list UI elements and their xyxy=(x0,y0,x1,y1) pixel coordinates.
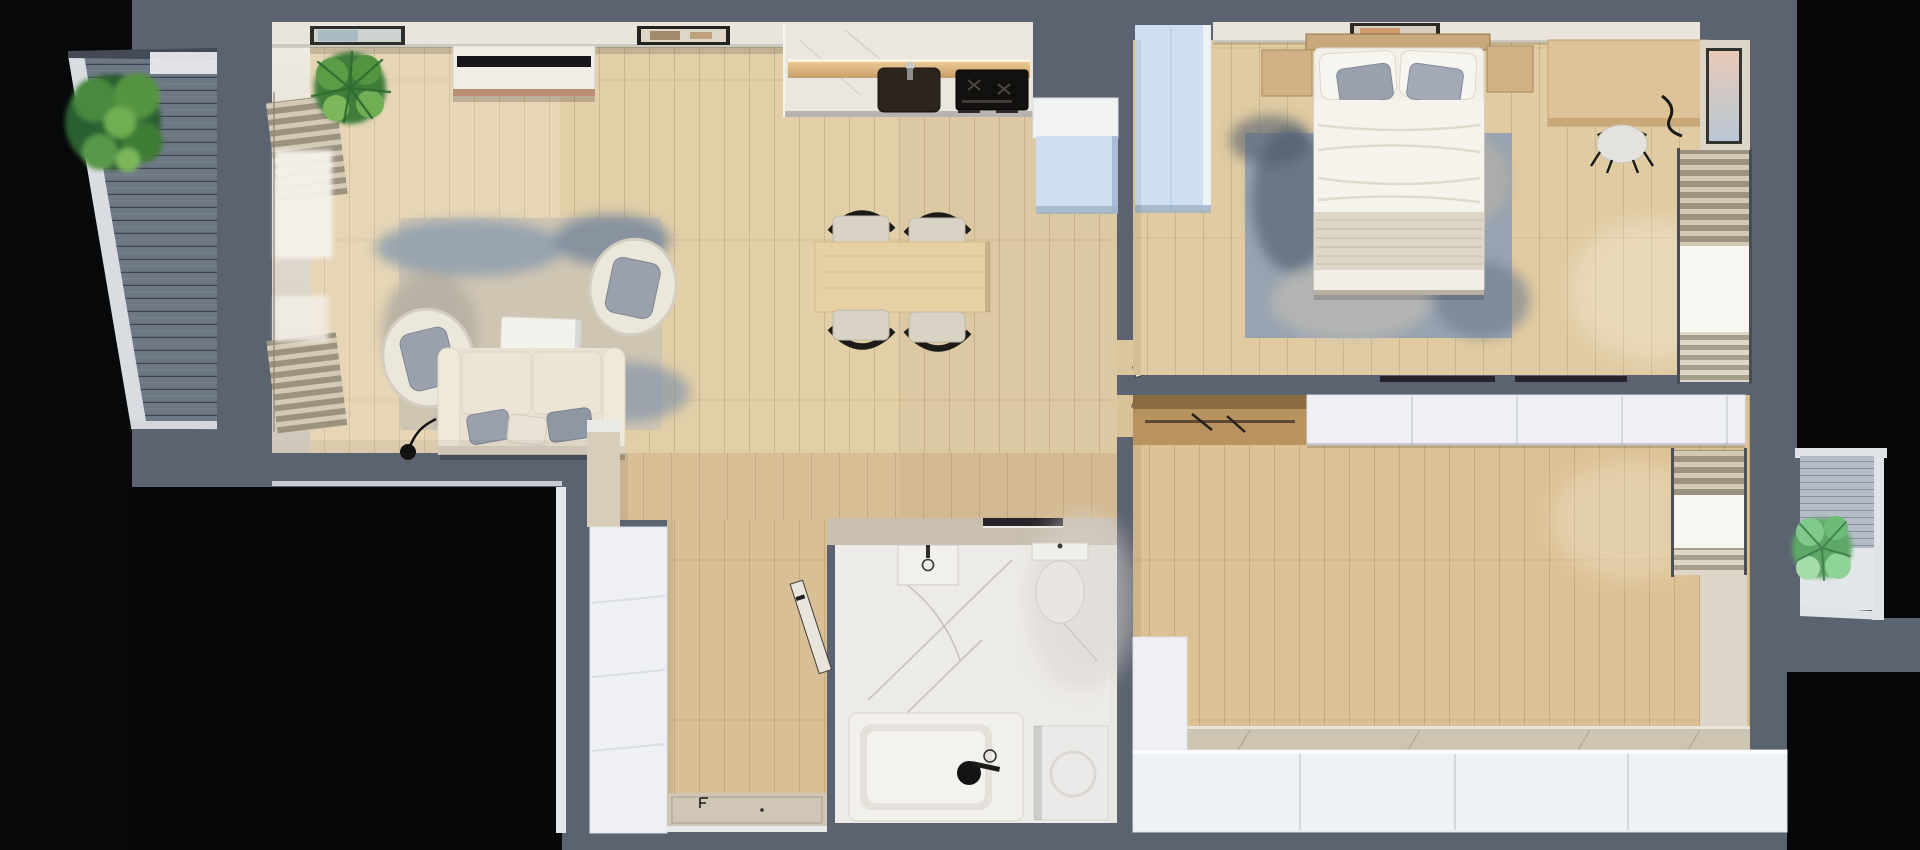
wall-art-kitchen xyxy=(637,26,730,45)
cooktop-controls xyxy=(962,100,1012,103)
nightstand-right xyxy=(1487,46,1533,92)
balcony-right xyxy=(1792,448,1887,620)
desk xyxy=(1548,40,1708,136)
entrance-threshold xyxy=(667,793,827,832)
room2-ledge xyxy=(1187,728,1750,752)
wall-art-living xyxy=(310,26,405,45)
washing-machine xyxy=(1034,726,1108,820)
window-glow xyxy=(1680,246,1752,332)
flush-button xyxy=(1058,544,1063,549)
baseboard-highlight xyxy=(272,481,562,486)
window-light-upper xyxy=(274,150,332,258)
bathroom-west-face xyxy=(835,545,842,823)
ledge-highlight xyxy=(1187,726,1750,729)
hall-floor-planks xyxy=(667,520,827,795)
desk-front-edge xyxy=(1548,118,1708,126)
fridge-side-shade xyxy=(1112,136,1118,212)
hanger-rail xyxy=(1145,420,1295,423)
room2-east-face xyxy=(1700,575,1747,730)
wall-art-east xyxy=(1706,48,1742,144)
window-frame xyxy=(1677,148,1680,384)
oven-handle xyxy=(958,110,980,113)
threshold-outer-edge xyxy=(667,826,827,832)
duvet xyxy=(1314,100,1484,230)
bed xyxy=(1306,34,1490,300)
balcony-right-plant xyxy=(1792,516,1852,580)
blinds-stack-top xyxy=(1680,150,1752,246)
room2-wardrobe-row xyxy=(1307,395,1745,448)
wall-stub-top xyxy=(587,420,620,432)
floor-plan-render xyxy=(0,0,1920,850)
bedroom-window xyxy=(1677,148,1752,384)
faucet-stem xyxy=(907,68,913,80)
cabinet-top-highlight xyxy=(1133,750,1787,754)
bed-frame-edge xyxy=(1314,290,1484,295)
oven-handle xyxy=(996,110,1018,113)
sofa-seat-cushion xyxy=(462,352,531,414)
blinds-stack-bottom xyxy=(1673,548,1747,575)
closet-track xyxy=(1380,376,1495,382)
room2-window xyxy=(1671,448,1747,577)
balcony-door-light xyxy=(150,52,217,74)
pillow-gray xyxy=(1406,62,1464,105)
window-frame xyxy=(1749,148,1752,384)
tv-cabinet xyxy=(453,46,595,96)
wardrobe-shelf-shade xyxy=(1133,395,1307,409)
threshold-dot xyxy=(760,808,764,812)
wall-stub-column xyxy=(587,420,620,527)
table-edge-shade xyxy=(985,242,990,312)
basin-drain xyxy=(923,560,934,571)
bedroom-blue-wardrobe xyxy=(1135,25,1211,213)
blinds-stack-top xyxy=(1673,450,1747,495)
outside-top-right xyxy=(1797,0,1920,455)
bedroom-doorway xyxy=(1117,340,1133,375)
bedroom xyxy=(1133,22,1752,384)
closet-track xyxy=(1515,376,1627,382)
cooktop xyxy=(956,70,1028,110)
basin-faucet xyxy=(926,545,930,558)
sliding-door-track xyxy=(983,518,1063,526)
hall-wardrobe xyxy=(590,527,667,833)
undercabinet-light xyxy=(788,59,1030,62)
wardrobe-shade xyxy=(1135,205,1211,213)
room2-open-wardrobe xyxy=(1133,395,1307,445)
room-2 xyxy=(1133,395,1787,832)
balcony-left-bottom-frame xyxy=(131,421,217,429)
fridge-bottom-shade xyxy=(1036,206,1118,214)
washbasin xyxy=(898,545,958,585)
bed-shadow xyxy=(1314,295,1484,300)
kitchen-sink xyxy=(878,62,940,113)
bathtub xyxy=(849,713,1023,821)
sofa-armrest-left xyxy=(438,348,460,454)
outside-bottom-right xyxy=(1787,672,1920,850)
wardrobe-row-shadow xyxy=(1307,443,1745,448)
window-frame xyxy=(1744,448,1747,577)
tv-cabinet-edge xyxy=(453,89,595,96)
wall-edge-highlight xyxy=(556,487,566,833)
window-glow xyxy=(1673,495,1747,548)
outside-mid-right xyxy=(1880,455,1920,618)
roman-blinds-lower xyxy=(266,332,347,434)
window-light-lower xyxy=(274,296,328,342)
window-frame xyxy=(1671,448,1674,577)
blinds-stack-bottom xyxy=(1680,332,1752,382)
dining-chair xyxy=(830,213,893,246)
dining-table xyxy=(815,242,990,312)
wardrobe-side xyxy=(1203,25,1211,210)
kitchen-corner-wall xyxy=(1033,0,1133,98)
tv-screen xyxy=(457,56,591,67)
fridge-cabinet xyxy=(1033,98,1118,214)
outside-bottom-left xyxy=(132,487,562,850)
bed-foot xyxy=(1314,270,1484,292)
counter-front-shadow xyxy=(785,111,1033,117)
tv-cabinet-shadow xyxy=(453,96,595,102)
bathroom xyxy=(827,510,1137,823)
sofa-seat-cushion xyxy=(533,352,601,414)
room2-doorway xyxy=(1117,395,1133,437)
nightstand-left xyxy=(1262,50,1312,96)
pillow-gray xyxy=(1336,62,1394,105)
sofa-pillow-gray xyxy=(546,407,594,443)
tv-sideboard xyxy=(453,46,595,102)
